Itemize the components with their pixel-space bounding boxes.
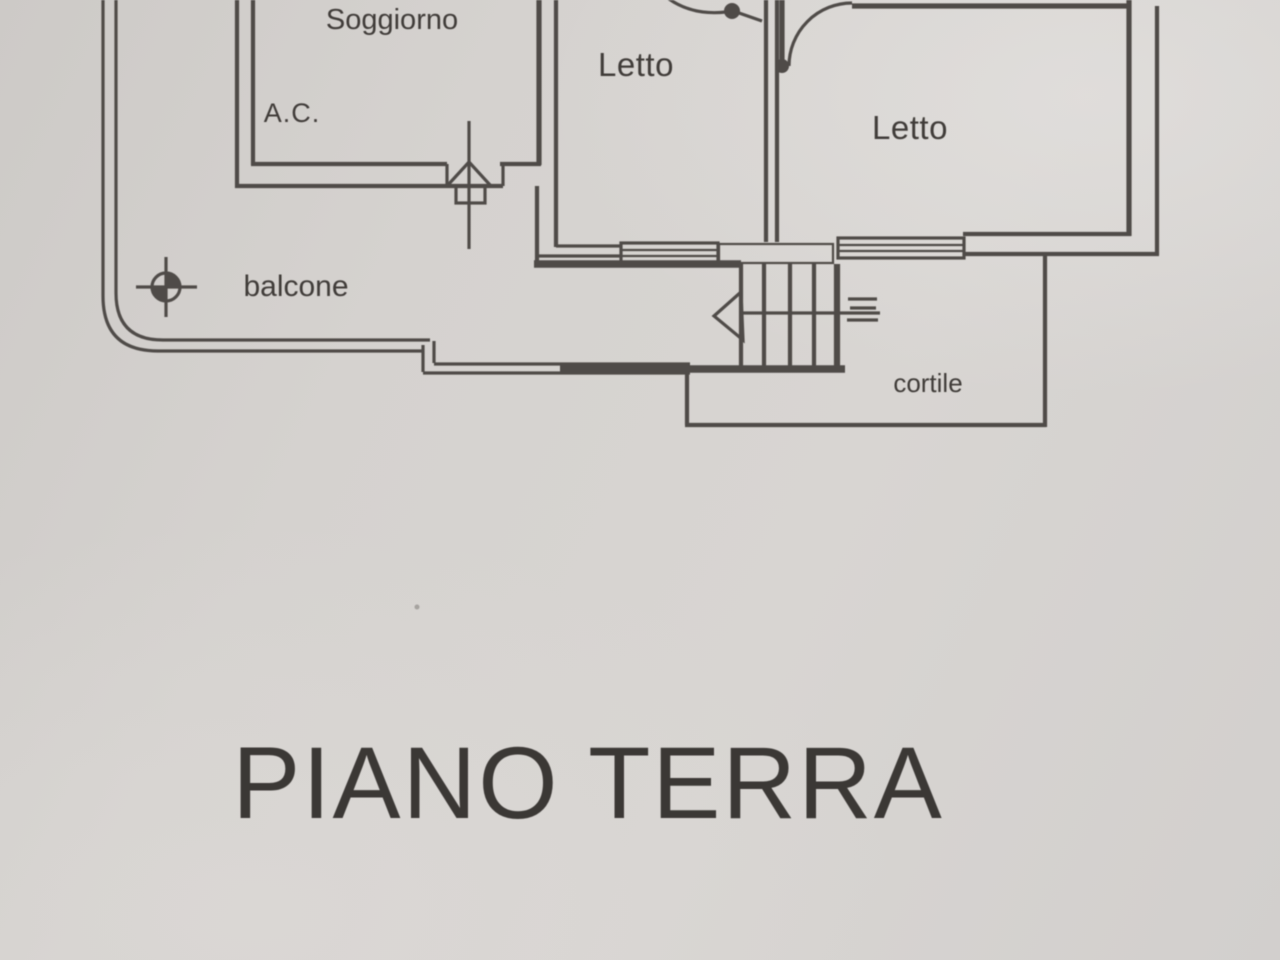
window-symbol-letto1	[621, 243, 718, 263]
staircase	[534, 264, 880, 369]
stair-direction-arrow	[714, 292, 743, 340]
room-soggiorno: Soggiorno A.C.	[235, 0, 541, 188]
room-letto-2: Letto	[775, 0, 1159, 258]
door-swing-letto1	[665, 0, 762, 21]
floor-plan-drawing: balcone Soggiorno A.C.	[0, 0, 1280, 960]
door-hinge-dot	[775, 59, 789, 73]
paper-speck	[415, 605, 420, 610]
window-symbol-letto2	[838, 238, 964, 258]
crosshair-wedge-top	[166, 273, 180, 287]
soggiorno-label: Soggiorno	[326, 4, 458, 36]
window-frame	[621, 243, 718, 263]
door-leaf-tail	[739, 13, 762, 21]
room-letto-1: Letto	[539, 0, 762, 263]
wall-soggiorno-letto1	[537, 0, 556, 264]
crosshair-wedge-bottom	[152, 287, 166, 301]
letto1-label: Letto	[598, 46, 674, 83]
stair-break-marks	[847, 299, 878, 320]
balcony-label: balcone	[243, 270, 348, 303]
window-frame	[838, 238, 964, 258]
window-glazing-lines	[838, 245, 964, 251]
balcony-step-edge	[423, 341, 434, 372]
wall-letto1-letto2	[766, 0, 777, 242]
balcony-door-symbol	[447, 121, 491, 249]
benchmark-crosshair-icon	[136, 257, 197, 317]
stair-landing-threshold	[719, 244, 833, 263]
window-glazing-lines	[621, 250, 718, 256]
stair-steps	[741, 264, 814, 366]
scanned-floor-plan-page: balcone Soggiorno A.C.	[0, 0, 1280, 960]
door-hinge-dot	[724, 3, 740, 19]
plan-title: PIANO TERRA	[232, 726, 944, 840]
door-arc	[789, 3, 852, 66]
letto2-label: Letto	[872, 109, 948, 146]
door-swing-letto2	[775, 0, 852, 73]
courtyard-label: cortile	[893, 368, 962, 398]
door-arc	[665, 0, 726, 13]
ac-label: A.C.	[264, 98, 321, 128]
